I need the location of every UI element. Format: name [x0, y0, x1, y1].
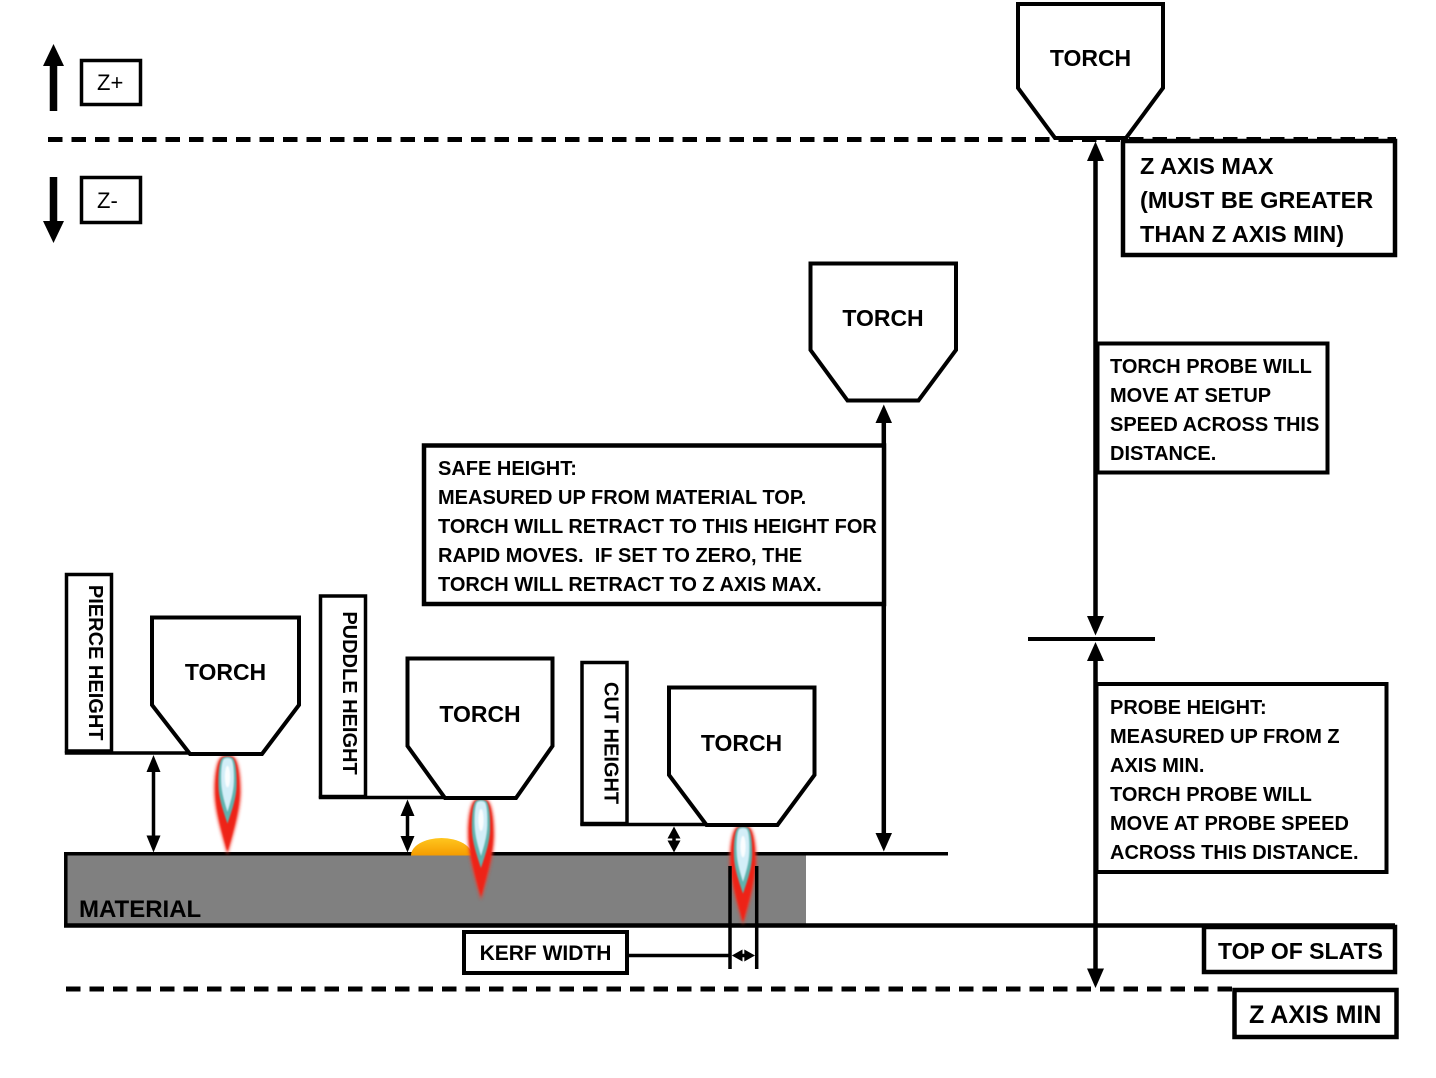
svg-text:MEASURED UP FROM MATERIAL TOP.: MEASURED UP FROM MATERIAL TOP. [438, 487, 806, 509]
svg-text:TORCH PROBE WILL: TORCH PROBE WILL [1110, 784, 1312, 806]
svg-text:PIERCE HEIGHT: PIERCE HEIGHT [84, 585, 106, 741]
svg-text:TORCH WILL RETRACT TO Z AXIS M: TORCH WILL RETRACT TO Z AXIS MAX. [438, 574, 822, 596]
svg-text:PROBE HEIGHT:: PROBE HEIGHT: [1110, 697, 1267, 719]
svg-text:MATERIAL: MATERIAL [79, 896, 201, 923]
svg-text:Z AXIS MAX: Z AXIS MAX [1140, 153, 1274, 179]
svg-text:TORCH PROBE WILL: TORCH PROBE WILL [1110, 356, 1312, 378]
svg-text:MEASURED UP FROM Z: MEASURED UP FROM Z [1110, 726, 1340, 748]
svg-text:AXIS MIN.: AXIS MIN. [1110, 755, 1204, 777]
svg-text:(MUST BE GREATER: (MUST BE GREATER [1140, 187, 1373, 213]
svg-text:MOVE AT PROBE SPEED: MOVE AT PROBE SPEED [1110, 813, 1349, 835]
svg-text:TORCH WILL RETRACT TO THIS HEI: TORCH WILL RETRACT TO THIS HEIGHT FOR [438, 516, 877, 538]
svg-text:TOP OF SLATS: TOP OF SLATS [1218, 938, 1383, 964]
svg-text:ACROSS THIS DISTANCE.: ACROSS THIS DISTANCE. [1110, 842, 1359, 864]
svg-text:THAN Z AXIS MIN): THAN Z AXIS MIN) [1140, 221, 1344, 247]
svg-text:Z AXIS MIN: Z AXIS MIN [1249, 1001, 1381, 1029]
svg-text:SAFE HEIGHT:: SAFE HEIGHT: [438, 458, 577, 480]
svg-text:SPEED ACROSS THIS: SPEED ACROSS THIS [1110, 414, 1319, 436]
svg-text:MOVE AT SETUP: MOVE AT SETUP [1110, 385, 1271, 407]
svg-text:DISTANCE.: DISTANCE. [1110, 443, 1216, 465]
svg-text:Z+: Z+ [97, 70, 123, 95]
svg-text:PUDDLE HEIGHT: PUDDLE HEIGHT [338, 611, 360, 774]
svg-text:TORCH: TORCH [1050, 45, 1131, 71]
svg-text:KERF WIDTH: KERF WIDTH [480, 942, 612, 965]
svg-text:TORCH: TORCH [842, 305, 923, 331]
svg-text:RAPID MOVES. IF SET TO ZERO,: RAPID MOVES. IF SET TO ZERO, THE [438, 545, 802, 567]
svg-text:TORCH: TORCH [185, 659, 266, 685]
svg-text:TORCH: TORCH [701, 730, 782, 756]
svg-text:CUT HEIGHT: CUT HEIGHT [600, 682, 622, 804]
svg-text:TORCH: TORCH [439, 701, 520, 727]
svg-text:Z-: Z- [97, 188, 118, 213]
